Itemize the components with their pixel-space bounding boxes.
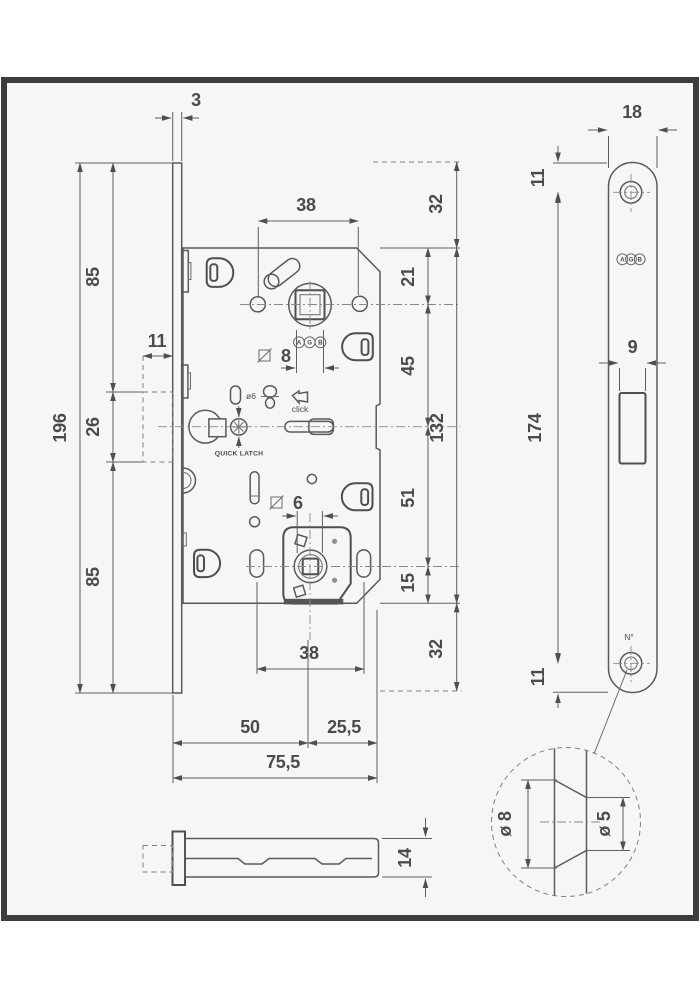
svg-text:45: 45 <box>398 356 418 376</box>
svg-text:11: 11 <box>528 169 548 188</box>
click-label: click <box>292 404 309 414</box>
svg-text:75,5: 75,5 <box>266 752 300 772</box>
svg-text:32: 32 <box>426 194 446 214</box>
svg-text:85: 85 <box>83 567 103 587</box>
svg-text:3: 3 <box>191 90 201 110</box>
svg-text:196: 196 <box>50 413 70 442</box>
logo-letter-g: G <box>307 340 312 347</box>
svg-text:32: 32 <box>426 639 446 659</box>
svg-text:25,5: 25,5 <box>327 717 361 737</box>
logo-letter-b: B <box>318 340 323 347</box>
drawing-frame <box>4 80 696 918</box>
svg-text:18: 18 <box>622 102 642 122</box>
technical-drawing-page: A G B ø6 click <box>0 0 700 1000</box>
svg-text:51: 51 <box>398 488 418 508</box>
svg-text:9: 9 <box>628 337 638 357</box>
svg-text:174: 174 <box>525 413 545 442</box>
svg-text:11: 11 <box>528 668 548 687</box>
plate-logo-g: G <box>629 257 634 264</box>
svg-text:21: 21 <box>398 267 418 287</box>
svg-text:11: 11 <box>148 331 167 351</box>
plate-logo-b: B <box>637 257 642 264</box>
quick-latch-label: QUICK LATCH <box>215 451 264 458</box>
svg-text:15: 15 <box>398 573 418 593</box>
serial-mark: N° <box>624 632 634 642</box>
lock-drawing-svg: A G B ø6 click <box>0 0 700 1000</box>
svg-text:ø 5: ø 5 <box>594 811 614 836</box>
svg-text:85: 85 <box>83 267 103 287</box>
latch-pin-dia-label: ø6 <box>246 391 256 401</box>
logo-letter-a: A <box>297 340 302 347</box>
svg-text:14: 14 <box>395 848 415 868</box>
svg-text:26: 26 <box>83 417 103 437</box>
svg-text:8: 8 <box>281 346 291 366</box>
svg-text:38: 38 <box>296 195 316 215</box>
svg-text:ø 8: ø 8 <box>495 811 515 836</box>
plate-logo-a: A <box>620 257 625 264</box>
svg-text:38: 38 <box>299 643 319 663</box>
svg-text:50: 50 <box>240 717 260 737</box>
svg-text:6: 6 <box>293 493 303 513</box>
svg-text:132: 132 <box>427 413 447 442</box>
